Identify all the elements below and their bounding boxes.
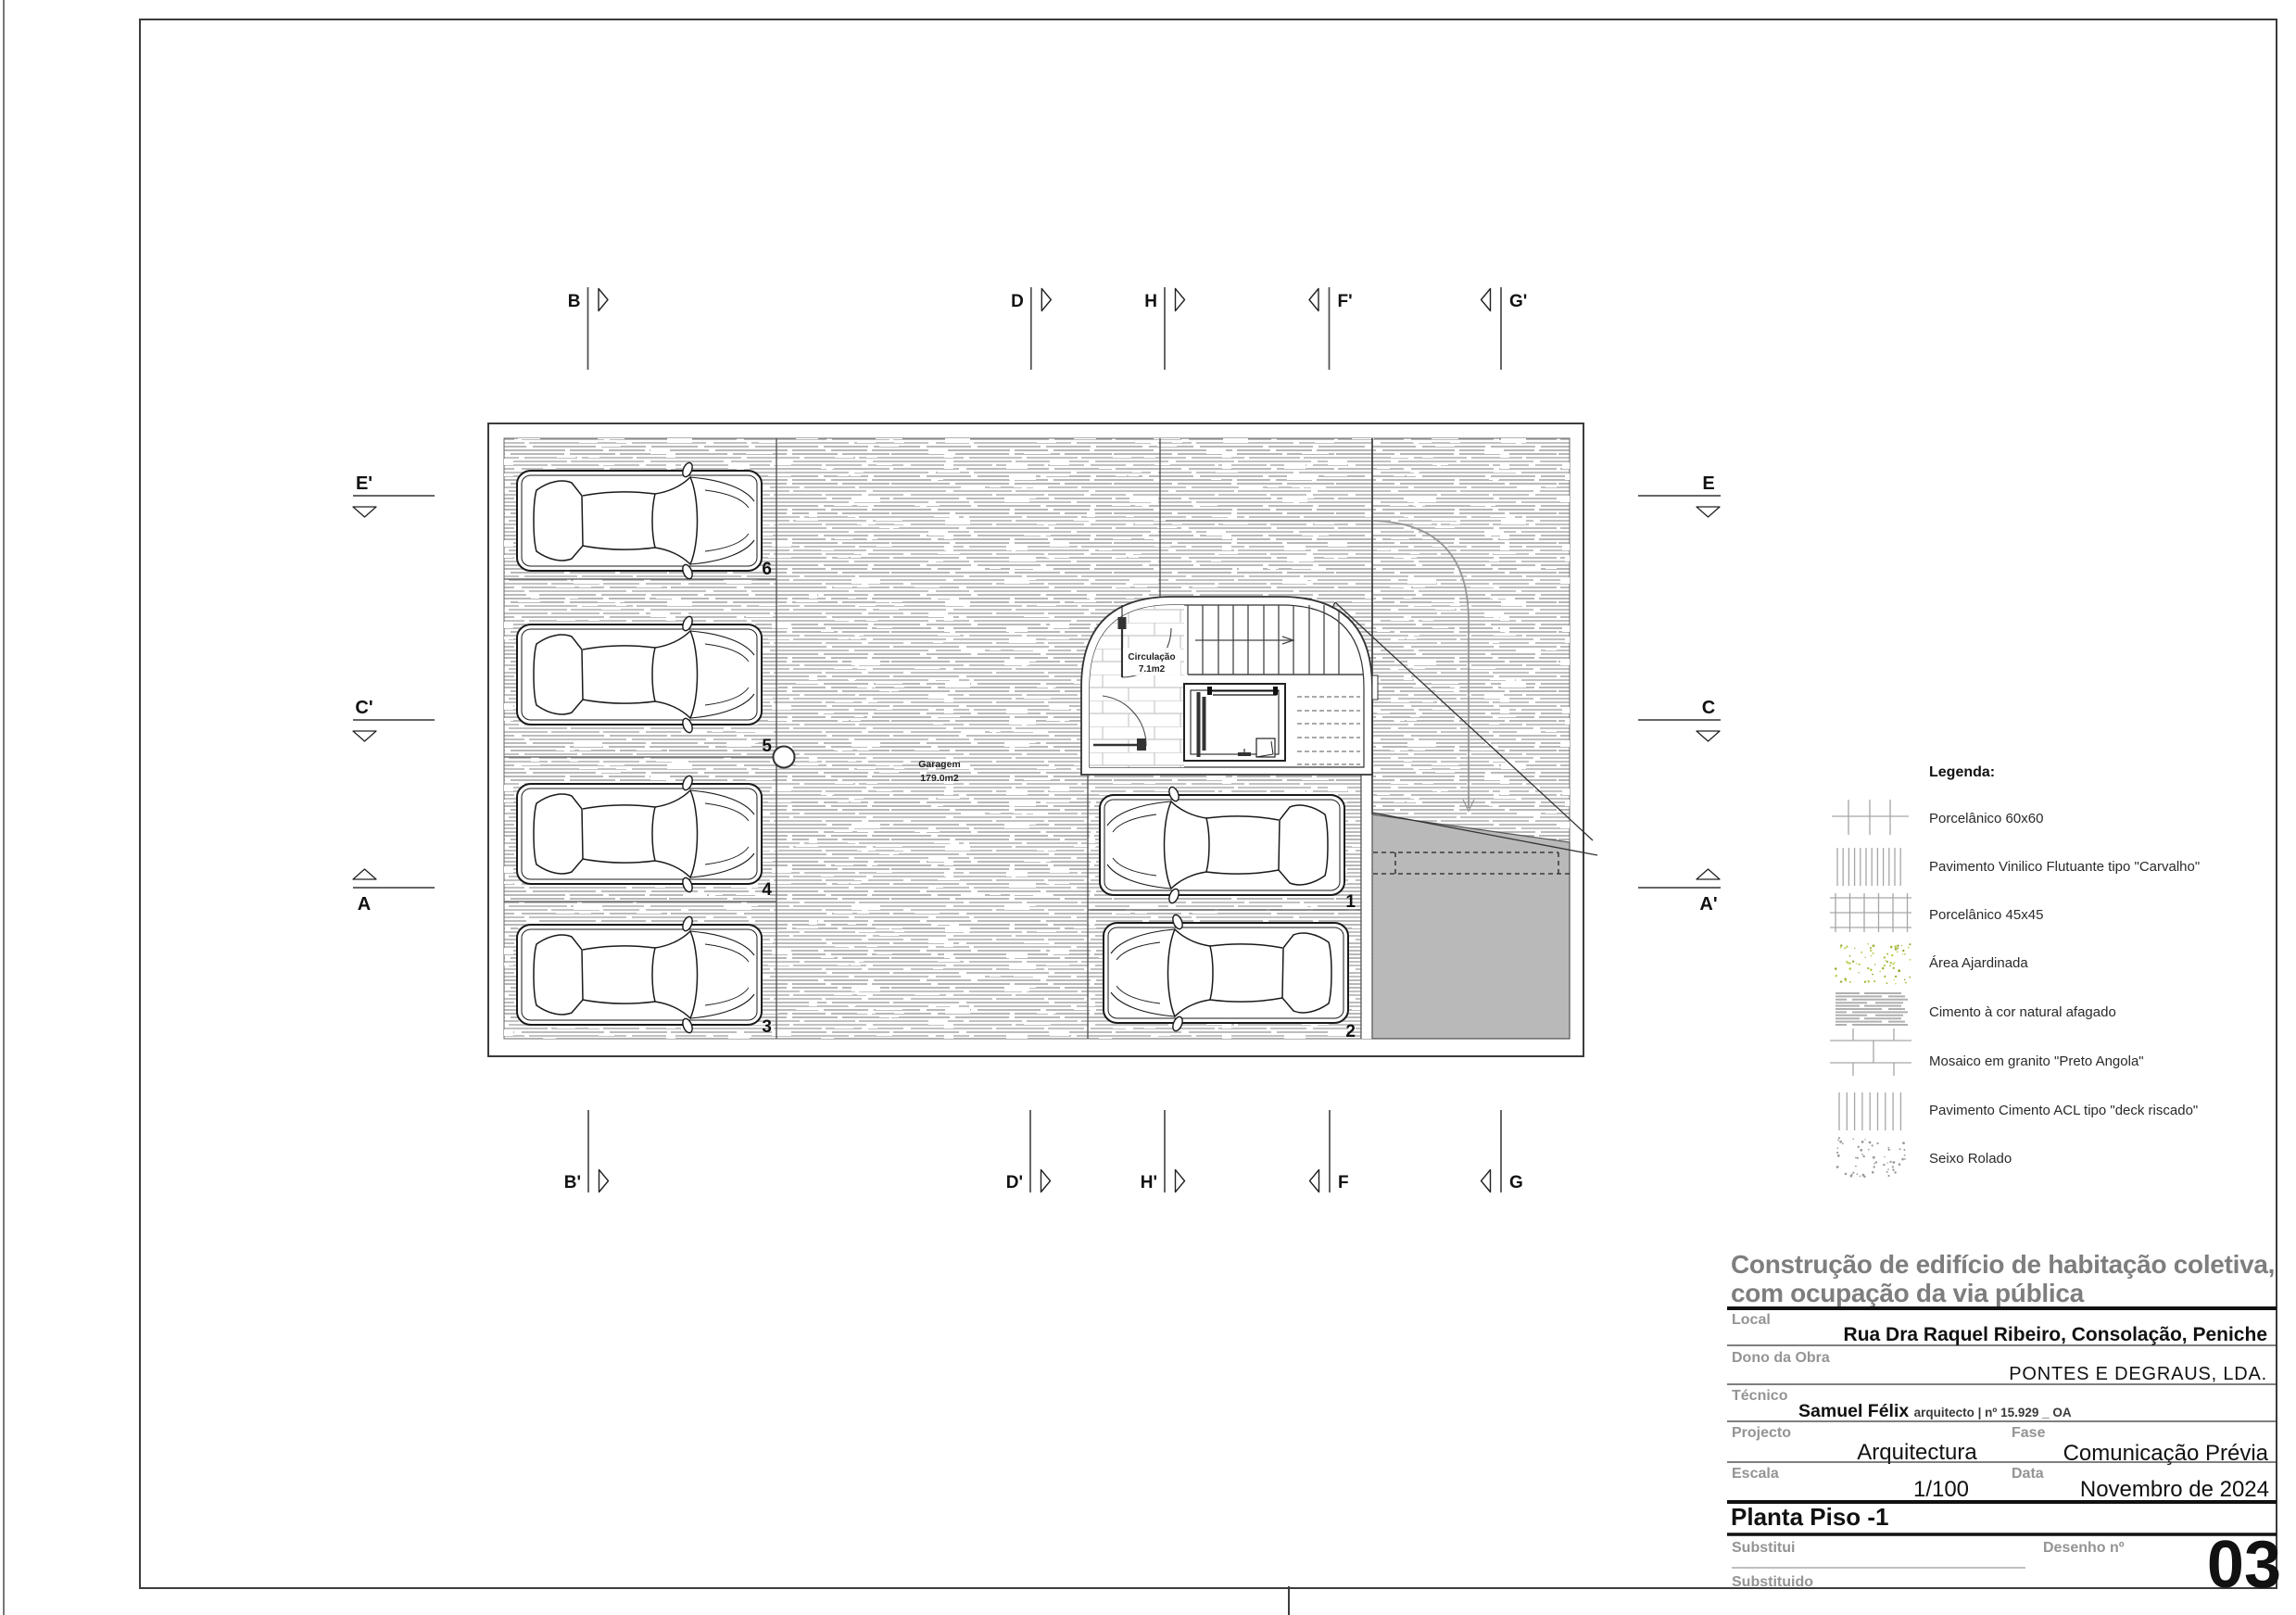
svg-text:H: H: [1144, 292, 1157, 311]
svg-text:Data: Data: [2012, 1466, 2044, 1482]
svg-text:Escala: Escala: [1732, 1466, 1779, 1482]
svg-text:Substitui: Substitui: [1732, 1540, 1795, 1556]
svg-text:Porcelânico 45x45: Porcelânico 45x45: [1929, 907, 2043, 923]
svg-text:Porcelânico 60x60: Porcelânico 60x60: [1929, 811, 2043, 826]
svg-text:179.0m2: 179.0m2: [920, 773, 959, 784]
svg-text:Desenho nº: Desenho nº: [2043, 1540, 2125, 1556]
svg-text:F: F: [1338, 1173, 1349, 1192]
svg-text:C': C': [355, 698, 372, 718]
svg-text:6: 6: [762, 560, 772, 579]
svg-text:1: 1: [1345, 892, 1356, 912]
svg-text:Seixo Rolado: Seixo Rolado: [1929, 1151, 2012, 1167]
svg-text:F': F': [1338, 292, 1353, 311]
svg-text:A: A: [358, 894, 371, 915]
svg-text:Construção de edifício de habi: Construção de edifício de habitação cole…: [1731, 1250, 2275, 1279]
svg-text:2: 2: [1345, 1022, 1356, 1041]
svg-text:3: 3: [762, 1017, 772, 1037]
svg-text:Pavimento Vinilico Flutuante t: Pavimento Vinilico Flutuante tipo "Carva…: [1929, 859, 2200, 875]
svg-text:Cimento à cor natural afagado: Cimento à cor natural afagado: [1929, 1004, 2116, 1020]
svg-text:Garagem: Garagem: [918, 759, 961, 770]
svg-text:A': A': [1699, 894, 1717, 915]
svg-text:Planta Piso -1: Planta Piso -1: [1731, 1503, 1889, 1531]
svg-text:E: E: [1702, 473, 1714, 494]
svg-text:B: B: [568, 292, 581, 311]
svg-text:5: 5: [762, 737, 772, 756]
svg-text:C: C: [1702, 698, 1715, 718]
svg-text:Técnico: Técnico: [1732, 1388, 1788, 1404]
svg-text:4: 4: [762, 880, 772, 900]
svg-text:E': E': [356, 473, 372, 494]
svg-text:D: D: [1011, 292, 1024, 311]
svg-text:Novembro de 2024: Novembro de 2024: [2080, 1477, 2269, 1502]
svg-text:Arquitectura: Arquitectura: [1857, 1440, 1977, 1465]
svg-text:Local: Local: [1732, 1312, 1771, 1328]
svg-text:Legenda:: Legenda:: [1929, 764, 1995, 780]
svg-text:Fase: Fase: [2012, 1425, 2046, 1441]
svg-text:1/100: 1/100: [1913, 1477, 1969, 1502]
svg-text:G': G': [1509, 292, 1527, 311]
svg-text:B': B': [564, 1173, 581, 1192]
svg-text:Pavimento Cimento ACL tipo "de: Pavimento Cimento ACL tipo "deck riscado…: [1929, 1103, 2198, 1118]
svg-text:Circulação: Circulação: [1128, 652, 1175, 662]
svg-text:Projecto: Projecto: [1732, 1425, 1791, 1441]
svg-text:D': D': [1006, 1173, 1023, 1192]
svg-text:H': H': [1141, 1173, 1157, 1192]
svg-text:Substituido: Substituido: [1732, 1574, 1813, 1590]
svg-text:Área Ajardinada: Área Ajardinada: [1929, 955, 2028, 971]
svg-text:PONTES E DEGRAUS, LDA.: PONTES E DEGRAUS, LDA.: [2009, 1364, 2267, 1384]
svg-text:Mosaico em granito "Preto Ango: Mosaico em granito "Preto Angola": [1929, 1054, 2144, 1069]
svg-text:com ocupação da via pública: com ocupação da via pública: [1731, 1279, 2085, 1307]
svg-text:Dono da Obra: Dono da Obra: [1732, 1350, 1830, 1366]
svg-text:Rua Dra Raquel Ribeiro, Consol: Rua Dra Raquel Ribeiro, Consolação, Peni…: [1844, 1324, 2267, 1345]
svg-text:G: G: [1509, 1173, 1523, 1192]
svg-text:7.1m2: 7.1m2: [1139, 664, 1166, 675]
svg-text:03: 03: [2207, 1528, 2281, 1602]
